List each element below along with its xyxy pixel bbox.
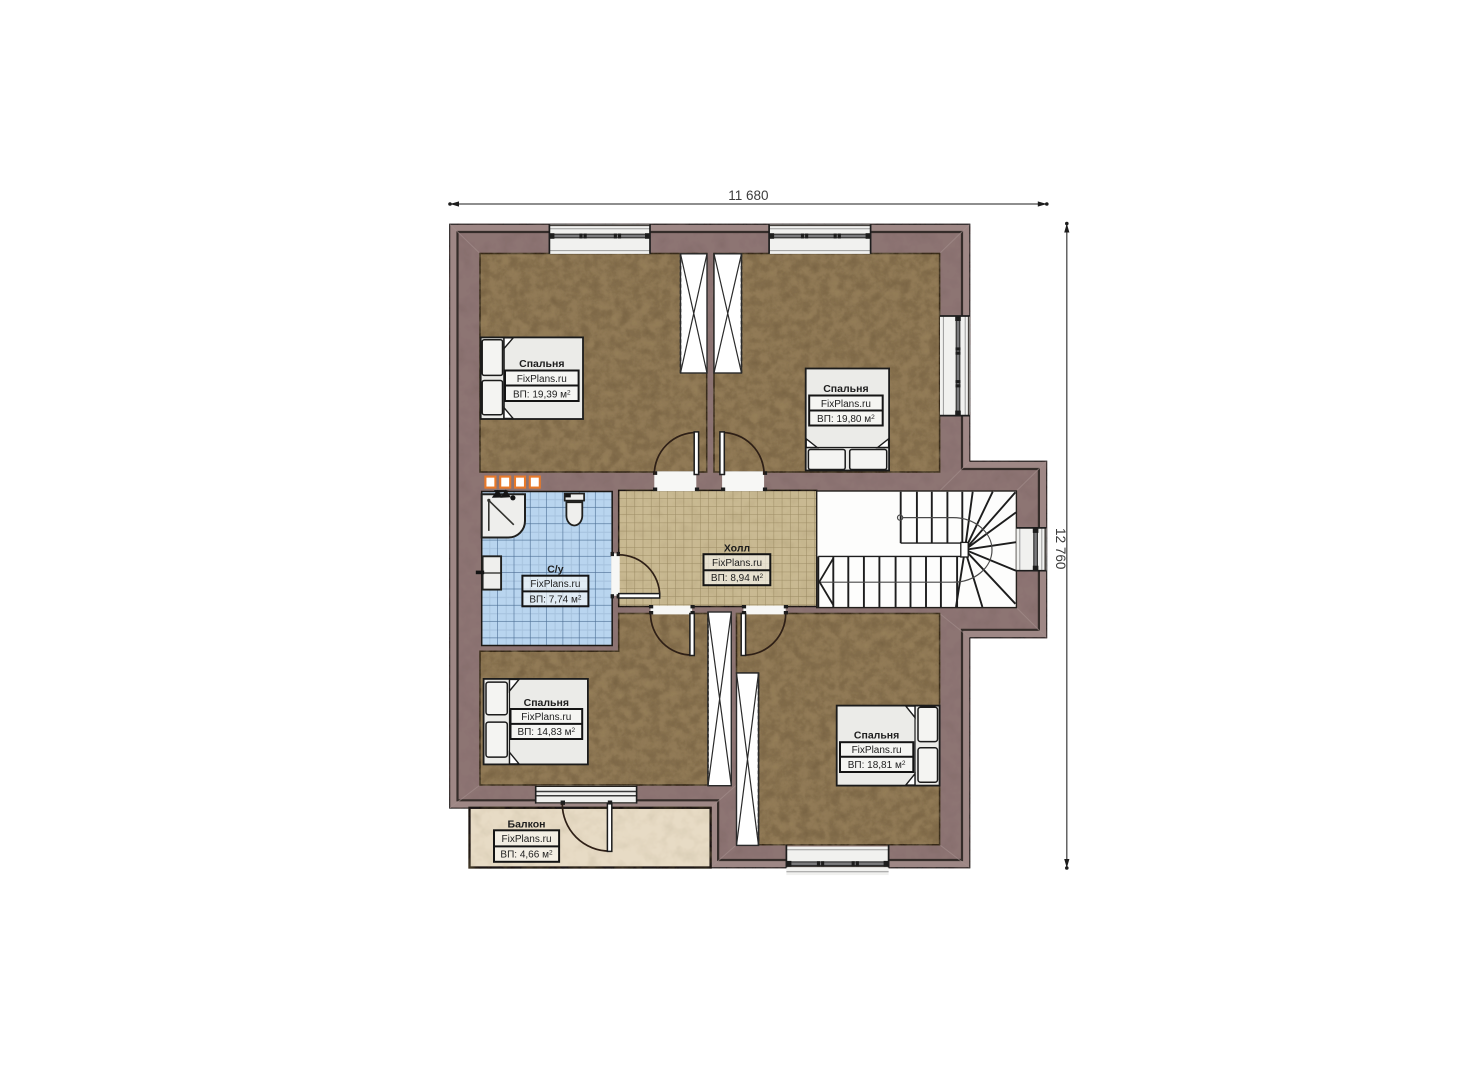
svg-text:FixPlans.ru: FixPlans.ru [712, 558, 762, 569]
svg-text:Спальня: Спальня [823, 383, 868, 395]
svg-text:FixPlans.ru: FixPlans.ru [521, 712, 571, 723]
svg-text:Спальня: Спальня [854, 730, 899, 742]
svg-text:С/у: С/у [547, 564, 564, 576]
svg-text:FixPlans.ru: FixPlans.ru [501, 834, 551, 845]
svg-text:ВП: 19,39 м2: ВП: 19,39 м2 [513, 389, 571, 400]
svg-text:ВП: 18,81 м2: ВП: 18,81 м2 [848, 760, 906, 771]
svg-text:ВП: 14,83 м2: ВП: 14,83 м2 [517, 727, 575, 738]
svg-text:12 760: 12 760 [1053, 528, 1068, 569]
svg-text:ВП: 19,80 м2: ВП: 19,80 м2 [817, 414, 875, 425]
svg-text:FixPlans.ru: FixPlans.ru [530, 579, 580, 590]
svg-text:Холл: Холл [724, 542, 750, 554]
svg-text:Спальня: Спальня [524, 697, 569, 709]
svg-text:11 680: 11 680 [728, 188, 768, 203]
svg-text:ВП: 8,94 м2: ВП: 8,94 м2 [711, 573, 764, 584]
svg-text:ВП: 4,66 м2: ВП: 4,66 м2 [500, 850, 553, 861]
svg-text:FixPlans.ru: FixPlans.ru [821, 399, 871, 410]
svg-text:ВП: 7,74 м2: ВП: 7,74 м2 [529, 595, 582, 606]
svg-text:Спальня: Спальня [519, 358, 564, 370]
svg-text:FixPlans.ru: FixPlans.ru [517, 374, 567, 385]
svg-text:FixPlans.ru: FixPlans.ru [852, 745, 902, 756]
svg-text:Балкон: Балкон [508, 819, 546, 831]
